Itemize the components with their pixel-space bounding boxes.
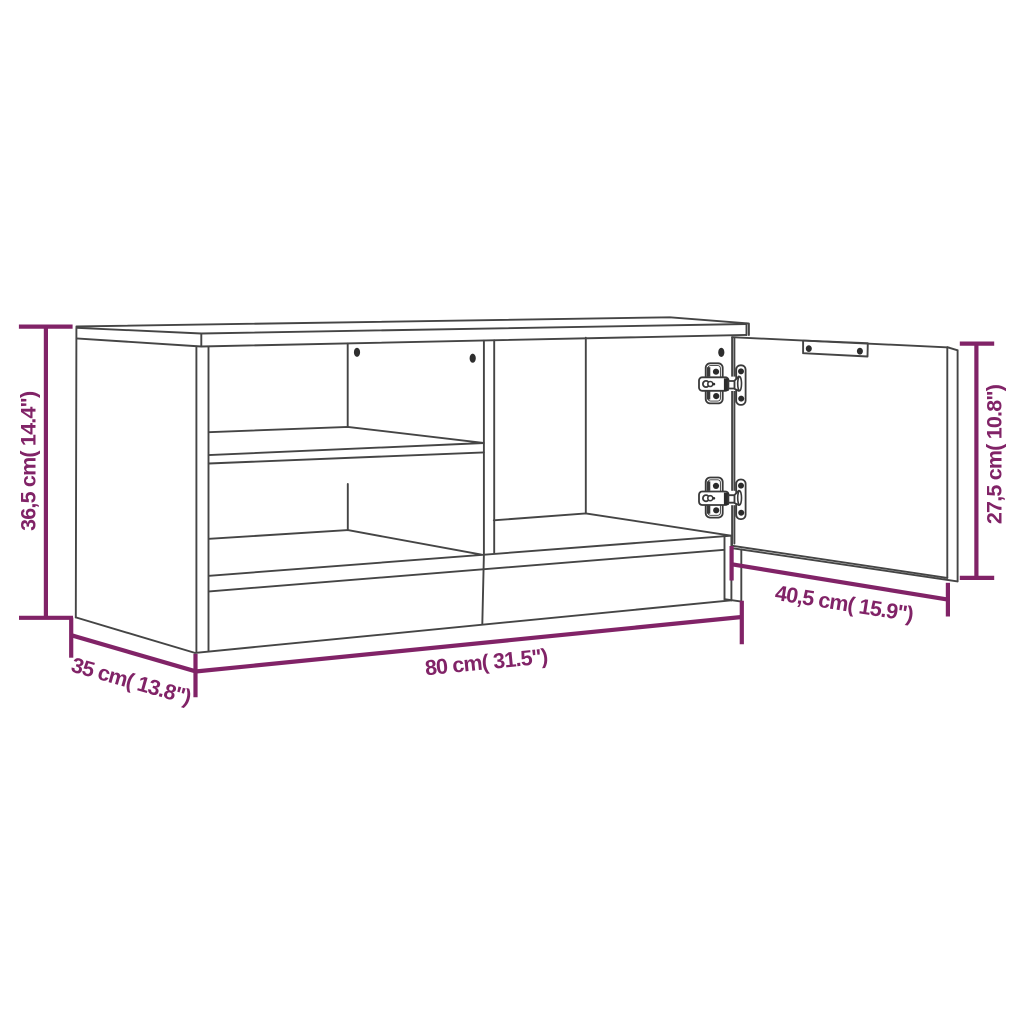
svg-text:36,5 cm( 14.4"): 36,5 cm( 14.4") [16,391,40,531]
svg-text:27,5 cm( 10.8"): 27,5 cm( 10.8") [983,384,1007,524]
